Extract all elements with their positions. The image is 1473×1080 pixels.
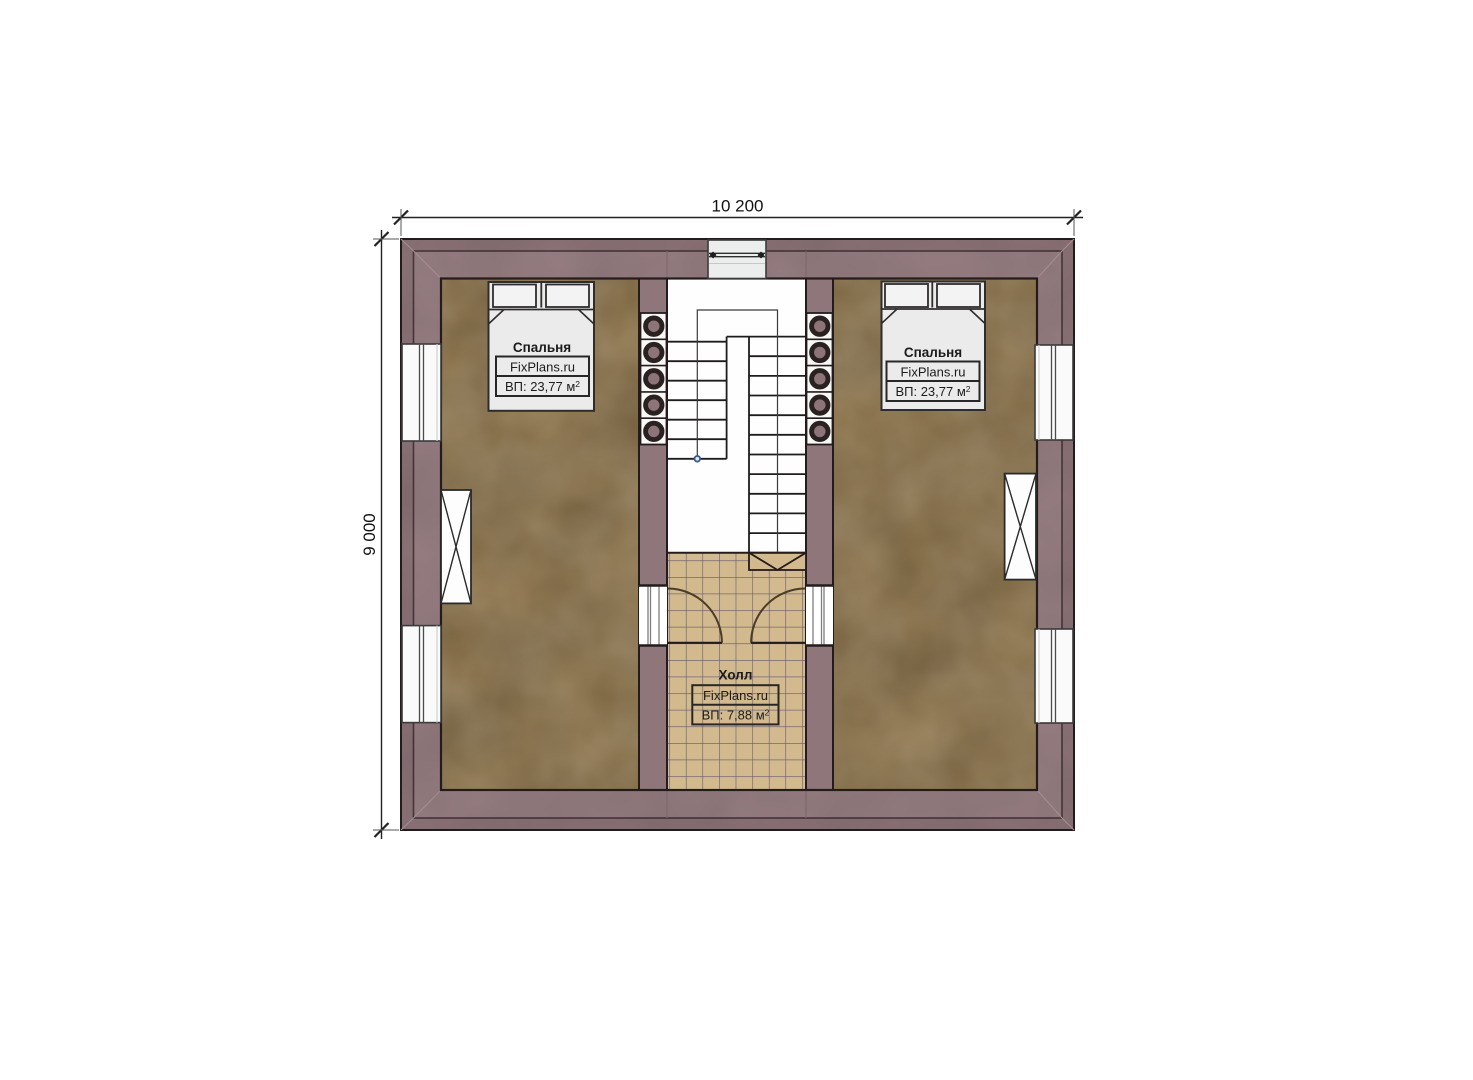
svg-text:ВП: 23,77 м2: ВП: 23,77 м2	[505, 379, 580, 394]
svg-text:ВП: 23,77 м2: ВП: 23,77 м2	[895, 384, 970, 399]
svg-text:ВП: 7,88 м2: ВП: 7,88 м2	[702, 708, 770, 723]
svg-text:Холл: Холл	[719, 668, 753, 683]
svg-text:10 200: 10 200	[712, 197, 764, 216]
svg-text:FixPlans.ru: FixPlans.ru	[703, 688, 768, 703]
svg-text:Спальня: Спальня	[513, 340, 571, 355]
svg-text:FixPlans.ru: FixPlans.ru	[510, 360, 575, 375]
svg-text:Спальня: Спальня	[904, 345, 962, 360]
svg-text:FixPlans.ru: FixPlans.ru	[900, 365, 965, 380]
svg-text:9 000: 9 000	[360, 513, 379, 556]
